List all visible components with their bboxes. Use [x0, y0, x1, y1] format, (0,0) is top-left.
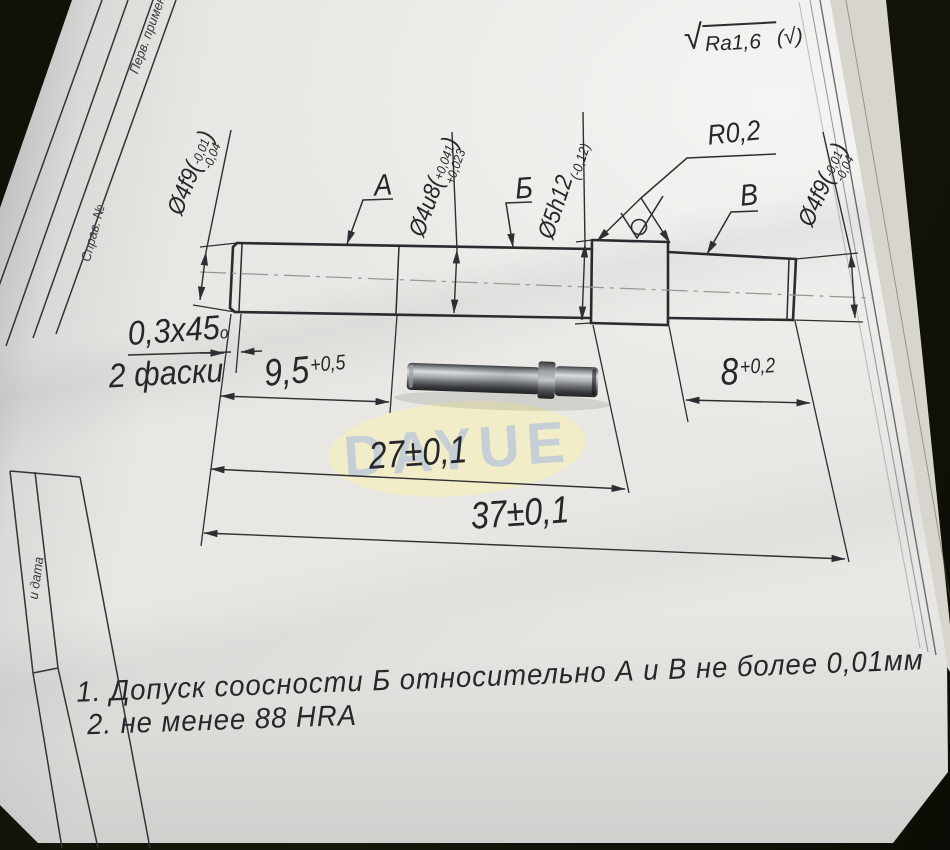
roughness-value: Ra1,6	[702, 21, 778, 57]
len-9-5-tol: +0,5	[309, 350, 346, 376]
len-9-5-value: 9,5	[262, 349, 310, 395]
dim-27-label: 27±0,1	[367, 429, 468, 479]
dim-37-label: 37±0,1	[469, 489, 570, 539]
len-8-tol: +0,2	[739, 354, 775, 379]
chamfer-value: 0,3x45	[127, 309, 221, 353]
roughness-check-icon: √	[683, 22, 703, 53]
dim-8-label: 8+0,2	[719, 349, 776, 395]
photo-of-technical-drawing: DAYUE	[0, 0, 950, 850]
frame-label-podp-data: и дата	[26, 556, 47, 600]
dia-collar-main: Ø5h12	[533, 172, 579, 242]
datum-label-b: Б	[514, 171, 534, 206]
datum-label-v: B	[738, 178, 759, 214]
general-roughness-note: √ Ra1,6 ( √ )	[683, 17, 803, 58]
dim-dia-left-label: Ø4f9(-0,01-0,04)	[162, 127, 226, 221]
note-line-1: 1. Допуск соосности Б относительно А и В…	[76, 644, 925, 710]
drawing-annotations: √ Ra1,6 ( √ ) Ø4f9(-0,01-0,04) Ø4u8(+0,0…	[0, 0, 950, 850]
paren-close: )	[795, 17, 804, 49]
dia-right-main: Ø4f9(	[793, 170, 840, 230]
dim-radius-label: R0,2	[706, 114, 762, 151]
frame-label-perv-primen: Перв. примен.	[126, 0, 169, 76]
len-8-value: 8	[719, 351, 739, 394]
dim-9-5-label: 9,5+0,5	[262, 346, 347, 396]
dia-collar-tol: (-0,12)	[566, 141, 593, 181]
dim-dia-mid-label: Ø4u8(+0,041+0,023)	[404, 134, 471, 243]
dim-dia-right-label: Ø4f9(-0,01-0,04)	[793, 139, 859, 233]
dim-chamfer-label: 0,3x45o	[127, 308, 230, 354]
frame-label-sprav-no: Справ. №	[78, 203, 108, 263]
dia-mid-main: Ø4u8(	[404, 174, 450, 240]
dim-dia-collar-label: Ø5h12(-0,12)	[533, 137, 593, 243]
dim-chamfer-note: 2 фаски	[108, 352, 225, 397]
dia-left-main: Ø4f9(	[162, 158, 207, 218]
datum-label-a: A	[373, 168, 393, 203]
chamfer-degree: o	[219, 323, 229, 343]
